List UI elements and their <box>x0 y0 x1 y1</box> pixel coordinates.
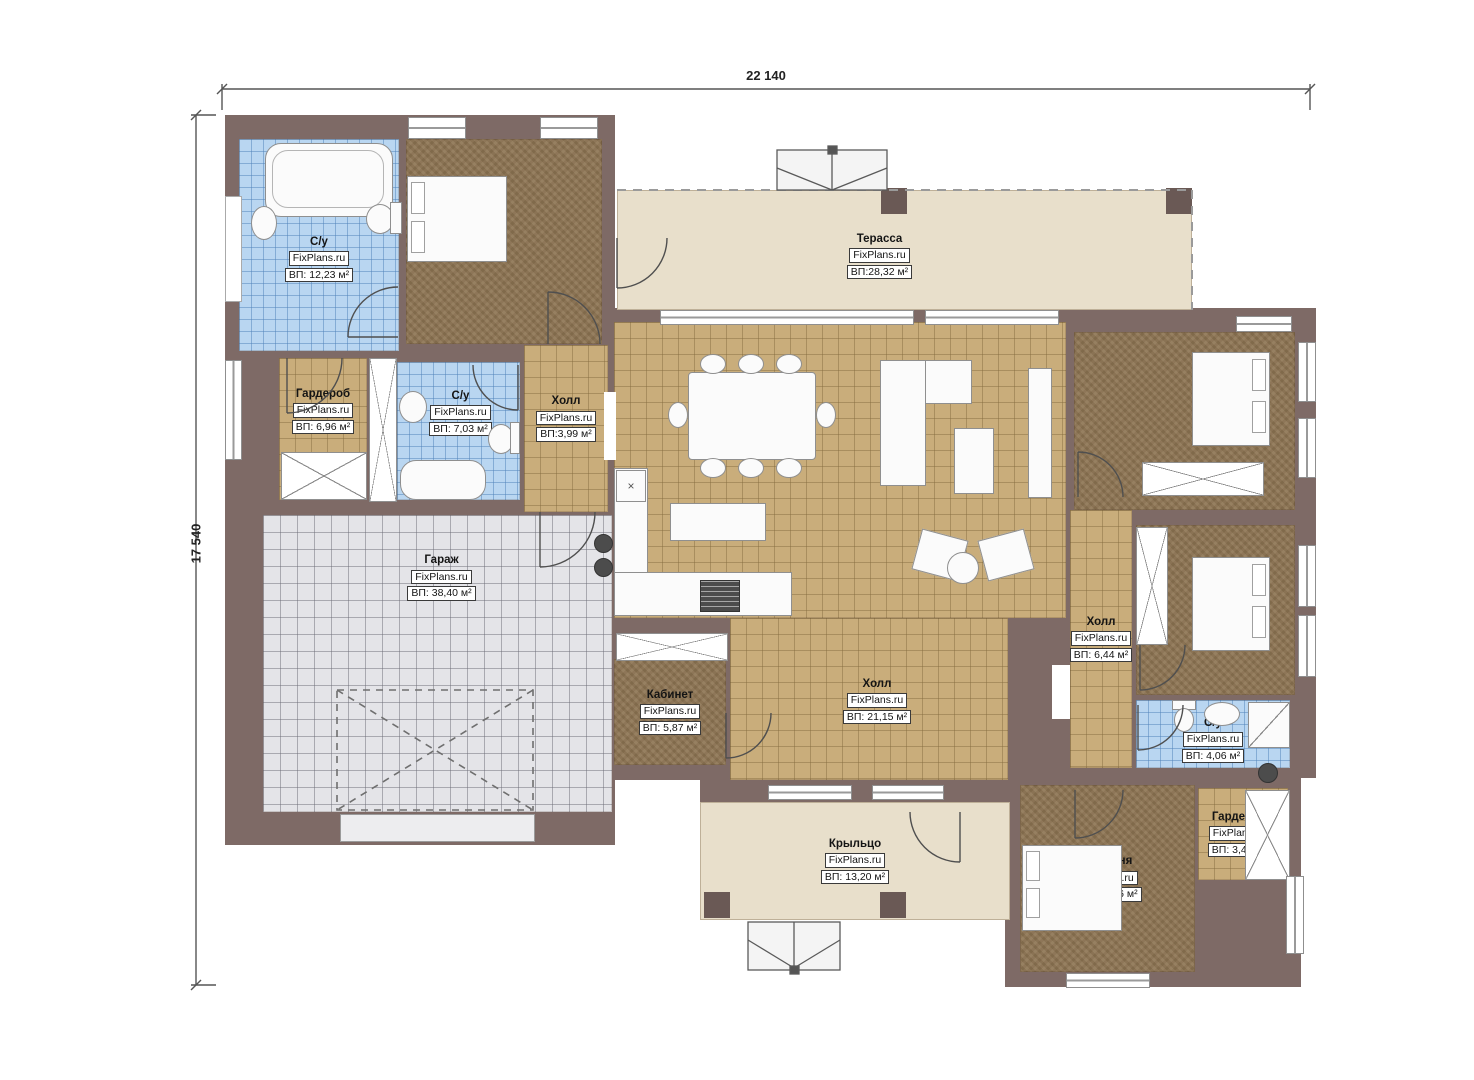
window <box>925 310 1059 325</box>
stairs-top-icon <box>777 146 887 190</box>
wardrobe-unit <box>1245 790 1290 880</box>
chair <box>738 354 764 374</box>
sofa <box>880 360 926 486</box>
tv-console <box>1028 368 1052 498</box>
window <box>872 785 944 800</box>
room-name: С/у <box>452 390 470 404</box>
bed <box>1192 557 1270 651</box>
pillow <box>1026 888 1040 918</box>
terrace-column <box>881 188 907 214</box>
kitchen-sink-icon <box>700 580 740 612</box>
pillow <box>1026 851 1040 881</box>
toilet-tank <box>510 422 520 454</box>
washer-icon <box>1258 763 1278 783</box>
room-label: Холл FixPlans.ru ВП: 6,44 м² <box>1070 616 1132 663</box>
chair <box>700 458 726 478</box>
chair <box>816 402 836 428</box>
room-area: ВП: 6,96 м² <box>292 420 354 435</box>
dimension-label-left: 17 540 <box>189 494 204 594</box>
wall-porch-top <box>700 780 1010 802</box>
room-name: Холл <box>863 678 892 692</box>
room-brand: FixPlans.ru <box>847 693 908 708</box>
window <box>1298 545 1316 607</box>
wardrobe-unit <box>281 452 367 500</box>
kitchen-unit-glyph: × <box>627 479 634 493</box>
window <box>1236 316 1292 332</box>
chair <box>700 354 726 374</box>
room-brand: FixPlans.ru <box>289 251 350 266</box>
room-name: Холл <box>552 395 581 409</box>
terrace-column <box>1166 188 1192 214</box>
pillow <box>1252 606 1266 638</box>
room-area: ВП: 13,20 м² <box>821 870 889 885</box>
shower-icon <box>1248 702 1290 748</box>
porch-column <box>704 892 730 918</box>
room-area: ВП: 4,06 м² <box>1182 749 1244 764</box>
coffee-table <box>954 428 994 494</box>
room-name: С/у <box>310 236 328 250</box>
room-brand: FixPlans.ru <box>411 570 472 585</box>
chair <box>776 354 802 374</box>
pillow <box>411 182 425 214</box>
room-label: Холл FixPlans.ru ВП:3,99 м² <box>536 395 597 442</box>
toilet-tank <box>390 202 402 234</box>
room-label: Гараж FixPlans.ru ВП: 38,40 м² <box>407 554 475 601</box>
dining-table <box>688 372 816 460</box>
stove-burner-icon <box>594 534 613 553</box>
door-opening <box>1052 665 1070 719</box>
room-porch: Крыльцо FixPlans.ru ВП: 13,20 м² <box>700 802 1010 920</box>
kitchen-unit-icon: × <box>616 470 646 502</box>
room-brand: FixPlans.ru <box>849 248 910 263</box>
room-hall-1: Холл FixPlans.ru ВП:3,99 м² <box>524 345 608 512</box>
window <box>408 117 466 139</box>
room-hall-2: Холл FixPlans.ru ВП: 6,44 м² <box>1070 510 1132 768</box>
room-brand: FixPlans.ru <box>825 853 886 868</box>
wardrobe-unit <box>1142 462 1264 496</box>
pillow <box>1252 359 1266 391</box>
room-brand: FixPlans.ru <box>1183 732 1244 747</box>
window <box>1298 615 1316 677</box>
chair <box>738 458 764 478</box>
room-label: Терасса FixPlans.ru ВП:28,32 м² <box>847 233 912 280</box>
side-table <box>947 552 979 584</box>
window <box>1298 418 1316 478</box>
room-brand: FixPlans.ru <box>1071 631 1132 646</box>
chair <box>668 402 688 428</box>
room-area: ВП: 5,87 м² <box>639 721 701 736</box>
room-name: Холл <box>1087 616 1116 630</box>
room-label: С/у FixPlans.ru ВП: 12,23 м² <box>285 236 353 283</box>
shelving-unit <box>369 358 397 502</box>
room-label: С/у FixPlans.ru ВП: 7,03 м² <box>429 390 491 437</box>
window <box>540 117 598 139</box>
room-brand: FixPlans.ru <box>430 405 491 420</box>
bathtub-inner <box>272 150 384 208</box>
floor-plan: С/у FixPlans.ru ВП: 12,23 м² Спальня Fix… <box>0 0 1474 1080</box>
window <box>1298 342 1316 402</box>
window <box>1066 973 1150 988</box>
bed <box>1192 352 1270 446</box>
stairs-bottom-icon <box>748 922 840 974</box>
garage-door <box>340 814 535 842</box>
window <box>768 785 852 800</box>
sink-icon <box>1204 702 1240 726</box>
room-hall-3: Холл FixPlans.ru ВП: 21,15 м² <box>730 618 1008 780</box>
room-area: ВП: 12,23 м² <box>285 268 353 283</box>
room-name: Терасса <box>857 233 903 247</box>
room-brand: FixPlans.ru <box>293 403 354 418</box>
sink-icon <box>251 206 277 240</box>
room-area: ВП: 21,15 м² <box>843 710 911 725</box>
toilet-icon <box>1174 708 1194 732</box>
room-area: ВП:3,99 м² <box>536 427 596 442</box>
kitchen-island <box>670 503 766 541</box>
sink-icon <box>399 391 427 423</box>
room-area: ВП: 7,03 м² <box>429 422 491 437</box>
window <box>225 360 242 460</box>
window <box>1286 876 1304 954</box>
pillow <box>1252 401 1266 433</box>
room-brand: FixPlans.ru <box>640 704 701 719</box>
pillow <box>411 221 425 253</box>
room-name: Гардероб <box>296 388 350 402</box>
room-area: ВП:28,32 м² <box>847 265 912 280</box>
bathtub <box>400 460 486 500</box>
bed <box>1022 845 1122 931</box>
dimension-label-top: 22 140 <box>222 68 1310 83</box>
porch-column <box>880 892 906 918</box>
room-label: Крыльцо FixPlans.ru ВП: 13,20 м² <box>821 838 889 885</box>
wall-niche <box>225 196 242 302</box>
room-label: Гардероб FixPlans.ru ВП: 6,96 м² <box>292 388 354 435</box>
room-label: Кабинет FixPlans.ru ВП: 5,87 м² <box>639 689 701 736</box>
room-name: Кабинет <box>647 689 694 703</box>
room-name: Гараж <box>424 554 458 568</box>
room-office: Кабинет FixPlans.ru ВП: 5,87 м² <box>614 659 726 765</box>
room-area: ВП: 38,40 м² <box>407 586 475 601</box>
room-garage: Гараж FixPlans.ru ВП: 38,40 м² <box>263 515 612 812</box>
stove-burner-icon <box>594 558 613 577</box>
sliding-door <box>660 310 914 325</box>
wardrobe-unit <box>1136 527 1168 645</box>
bed <box>407 176 507 262</box>
wardrobe-unit <box>616 633 728 661</box>
room-label: Холл FixPlans.ru ВП: 21,15 м² <box>843 678 911 725</box>
room-brand: FixPlans.ru <box>536 411 597 426</box>
room-area: ВП: 6,44 м² <box>1070 648 1132 663</box>
room-name: Крыльцо <box>829 838 881 852</box>
chair <box>776 458 802 478</box>
pillow <box>1252 564 1266 596</box>
door-opening <box>604 392 616 460</box>
